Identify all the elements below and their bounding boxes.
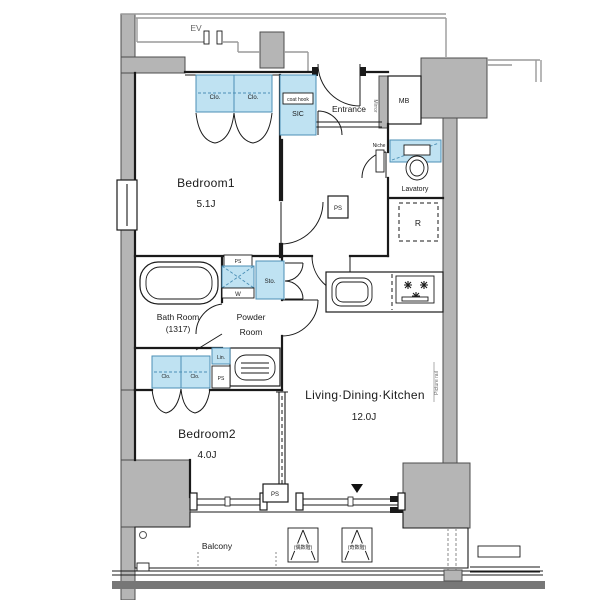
- shoe-closet: [280, 75, 316, 135]
- right-division-post: [444, 570, 462, 581]
- linen-label: Lin.: [217, 355, 225, 361]
- porch-column: [260, 32, 284, 68]
- powder-room: PS W Sto. Powder Room Lin. PS: [212, 255, 284, 388]
- powder-label-2: Room: [240, 327, 263, 337]
- left-wall-lower: [121, 390, 135, 460]
- hatch-odd-label: (奇数階): [348, 544, 367, 551]
- window-jamb: [190, 493, 197, 510]
- balcony-label: Balcony: [202, 541, 233, 551]
- mirror-wall: [379, 76, 388, 128]
- ev-door-jamb: [217, 31, 222, 44]
- bedroom1: Clo. Clo. Bedroom1 5.1J: [117, 75, 272, 230]
- ps-label: PS: [271, 492, 279, 498]
- kitchen-sink-inner: [336, 282, 368, 302]
- bath-room: Bath Room (1317): [140, 262, 218, 334]
- ldk: Living·Dining·Kitchen 12.0J Picture rail: [305, 272, 443, 423]
- toilet-tank: [404, 145, 430, 155]
- burner-icon: [404, 281, 412, 289]
- hatch-even-label: (偶数階): [294, 544, 313, 551]
- right-division: [448, 528, 456, 570]
- entrance-label: Entrance: [332, 104, 366, 114]
- powder-label-1: Powder: [237, 312, 266, 322]
- bedroom2-label: Bedroom2: [178, 427, 236, 441]
- floor-plan-page: EV Clo. Clo.: [0, 0, 600, 600]
- closet-label: Clo.: [162, 374, 171, 380]
- bedroom1-door: [281, 202, 323, 244]
- lavatory: Lavatory R: [390, 140, 441, 241]
- powder-door: [282, 300, 318, 336]
- niche-label: Niche: [373, 143, 386, 149]
- ev-door-jamb: [204, 31, 209, 44]
- bedroom2-size: 4.0J: [198, 450, 217, 461]
- mirror-label: Mirror: [372, 99, 378, 112]
- ldk-label: Living·Dining·Kitchen: [305, 388, 425, 402]
- bedroom1-label: Bedroom1: [177, 176, 235, 190]
- window-mullion: [225, 497, 230, 506]
- drain: [140, 532, 147, 539]
- top-right-pillar: [421, 58, 487, 118]
- lavatory-label: Lavatory: [402, 186, 429, 193]
- sic-label: SIC: [292, 111, 304, 118]
- closet-label: Clo.: [210, 95, 221, 101]
- storage-doors: [285, 263, 303, 299]
- closet-label: Clo.: [248, 95, 259, 101]
- picture-rail-label: Picture rail: [434, 371, 440, 395]
- window-jamb: [296, 493, 303, 510]
- bathtub-inner: [146, 267, 212, 299]
- ps-label: PS: [218, 376, 225, 382]
- sic-door: [318, 111, 342, 135]
- drain-box: [137, 563, 149, 571]
- washer-label: W: [235, 292, 241, 298]
- balcony-left-wall: [121, 527, 135, 600]
- floor-plan: EV Clo. Clo.: [0, 0, 600, 600]
- niche: [376, 150, 384, 172]
- closet-folding-doors: [196, 113, 272, 143]
- closet: [196, 75, 234, 112]
- closet-folding-doors: [152, 389, 210, 413]
- bottom-right-pillar: [403, 463, 470, 528]
- mb-label: MB: [399, 98, 410, 105]
- entrance-door: [318, 64, 360, 106]
- right-wall: [443, 118, 457, 463]
- ev-label: EV: [190, 23, 202, 33]
- grill-slot: [402, 297, 428, 301]
- balcony-rail: [112, 581, 545, 589]
- ps-label: PS: [235, 259, 242, 265]
- balcony-openings: PS: [190, 484, 405, 510]
- ps-label: PS: [334, 206, 342, 212]
- coat-hook-label: coat hook: [287, 97, 309, 103]
- bottom-left-block: [121, 460, 190, 527]
- toilet-bowl-inner: [410, 160, 424, 176]
- fridge-label: R: [415, 218, 421, 228]
- bedroom1-size: 5.1J: [197, 199, 216, 210]
- storage-label: Sto.: [265, 279, 276, 285]
- top-left-wall: [121, 57, 185, 73]
- orientation-marker: [351, 484, 363, 493]
- neighbor-partition: [478, 546, 520, 557]
- ldk-size: 12.0J: [352, 412, 376, 423]
- bath-door: [196, 304, 222, 350]
- entrance-step: [316, 122, 382, 127]
- window-mullion: [348, 497, 353, 506]
- bath-label: Bath Room: [157, 312, 200, 322]
- closet-label: Clo.: [191, 374, 200, 380]
- burner-icon: [420, 281, 428, 289]
- closet: [234, 75, 272, 112]
- bath-size: (1317): [166, 324, 191, 334]
- entrance-jamb: [360, 67, 366, 76]
- window-jamb: [398, 493, 405, 510]
- balcony-division: [198, 552, 276, 568]
